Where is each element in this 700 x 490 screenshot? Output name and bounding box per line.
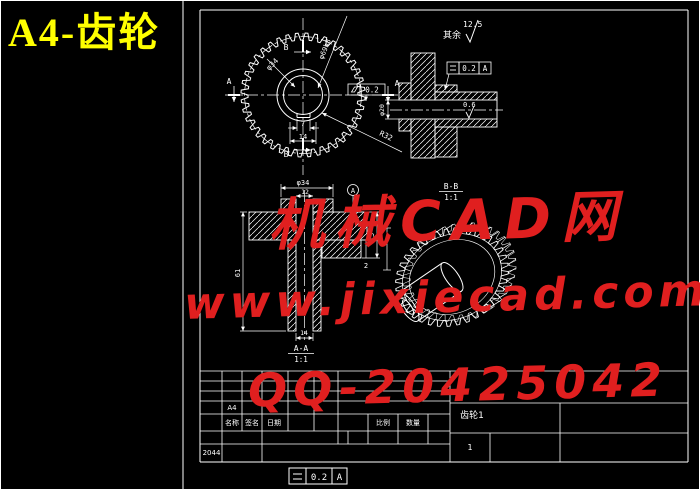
roughness-value: 0.6 (463, 101, 476, 109)
dimension-label: 14 (300, 329, 308, 337)
titleblock-scale-label: 比例 (368, 419, 398, 427)
dimension-label: 61 (234, 269, 242, 277)
bottom-fcf: 0.2 A (289, 468, 347, 484)
titleblock-sheet-size: A4 (222, 404, 242, 412)
view-title: A-A (294, 344, 309, 353)
titleblock-part-name: 齿轮1 (452, 412, 492, 420)
fcf-value: 0.2 (311, 473, 327, 483)
titleblock-name-label: 名称 (222, 419, 242, 427)
titleblock-drawing-no: 2044 (201, 449, 222, 457)
fcf-datum: A (483, 64, 488, 73)
dimension-label: 2 (364, 262, 368, 270)
others-label: 其余 (443, 29, 461, 41)
fcf-value: 0.2 (365, 86, 379, 95)
page-title: A4-齿轮 (8, 0, 160, 58)
dimension-label: 7 (301, 120, 305, 128)
flatness-symbol-icon (352, 87, 358, 92)
fcf-datum: A (337, 473, 343, 483)
dimension-label: R32 (378, 129, 394, 143)
section-label: B (284, 150, 289, 159)
titleblock-sheet-count: 1 (455, 444, 485, 452)
roughness-value: 12.5 (463, 20, 482, 29)
titleblock-date-label: 日期 (262, 419, 286, 427)
fcf-value: 0.2 (462, 64, 476, 73)
general-roughness-note: 其余 12.5 (443, 20, 482, 42)
titleblock-sign-label: 签名 (242, 419, 262, 427)
section-label: B (284, 43, 289, 52)
titleblock-qty-label: 数量 (398, 419, 428, 427)
gear-front-view: 7 14 B B A A φ34 φ69h8 R32 0.2 (225, 16, 402, 175)
gear-section-view: φ20 0.2 A 0.6 (378, 53, 503, 158)
section-label: A (227, 77, 232, 86)
dimension-label: φ20 (378, 104, 386, 116)
watermark-site-name: 机械CAD网 (267, 171, 628, 261)
cad-viewport: 其余 12.5 7 14 B B A (0, 0, 700, 490)
watermark-qq: QQ-20425042 (247, 353, 668, 418)
